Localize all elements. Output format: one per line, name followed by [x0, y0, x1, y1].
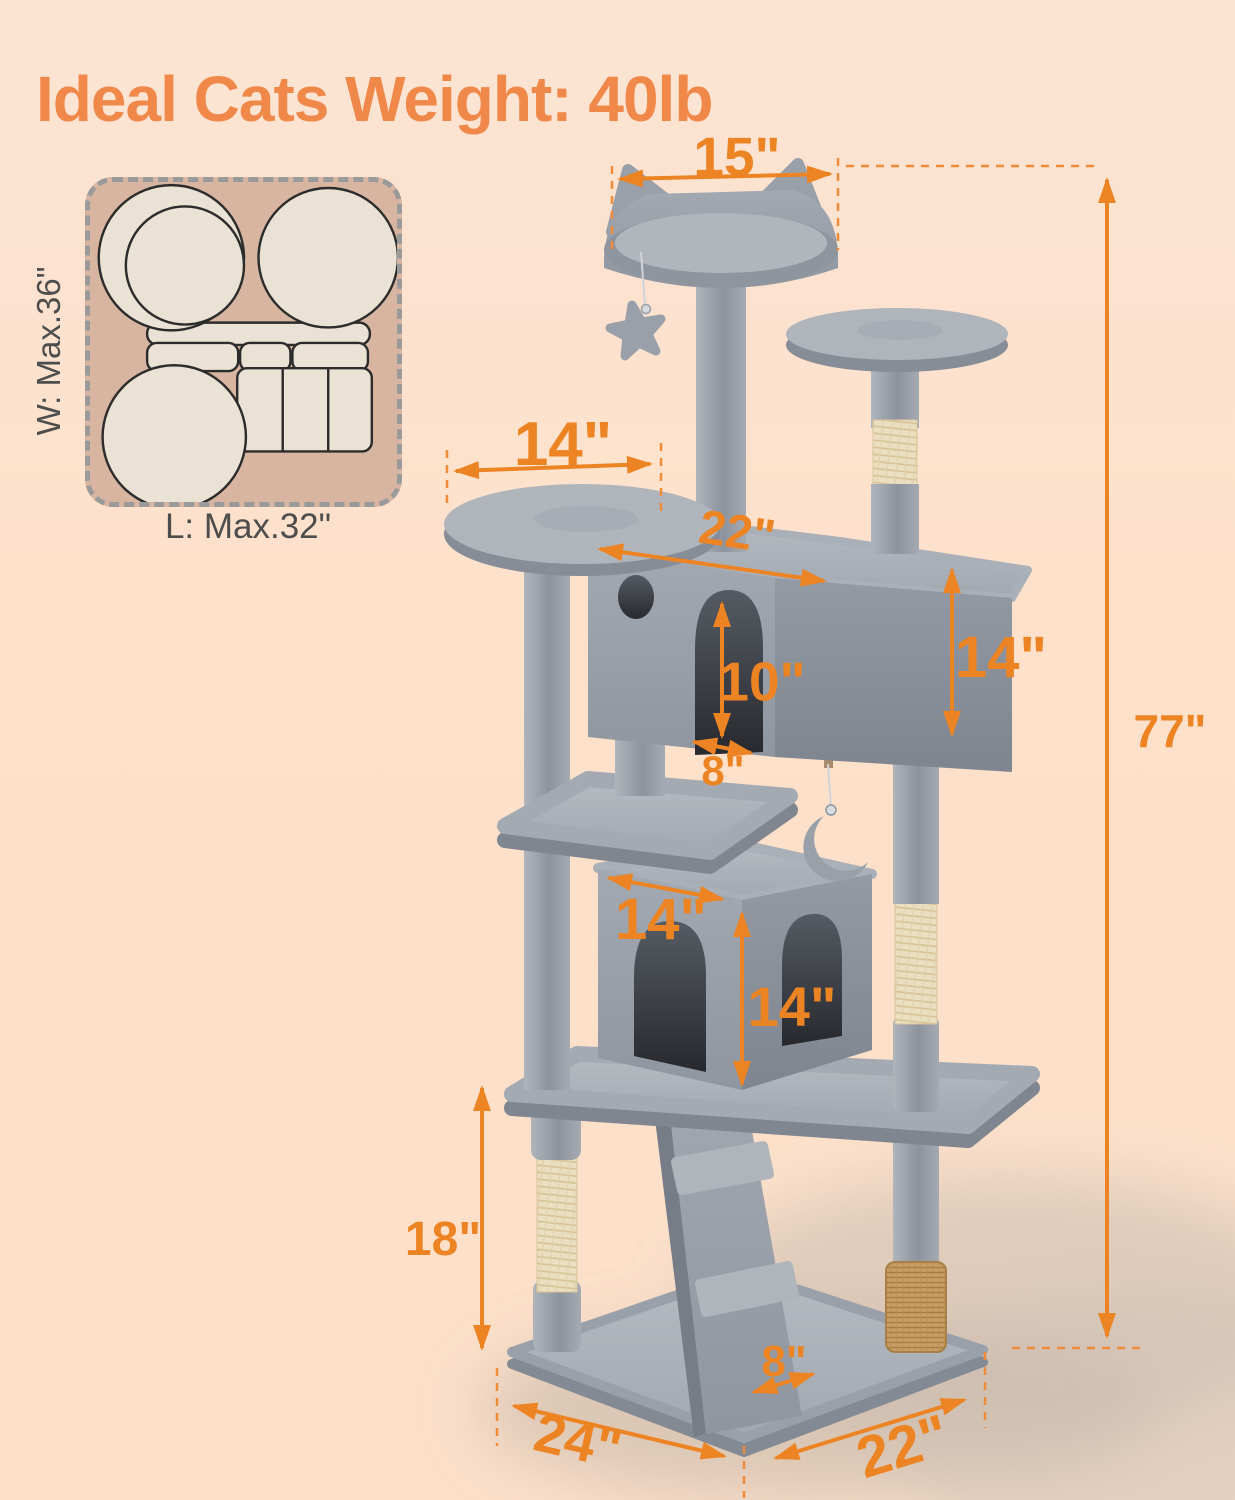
top-view-inset — [85, 177, 402, 507]
dim-label-bottom-section-height: 18" — [405, 1216, 481, 1264]
dim-label-top-perch-width: 15" — [693, 130, 780, 185]
right-upper-post — [871, 350, 919, 554]
page-title: Ideal Cats Weight: 40lb — [36, 62, 712, 136]
dim-label-total-height: 77" — [1134, 708, 1207, 754]
dim-label-ramp-width: 8" — [761, 1340, 806, 1384]
dim-label-upper-condo-height: 14" — [955, 629, 1047, 687]
top-view-diagram — [90, 182, 397, 502]
dim-label-left-platform-width: 14" — [514, 414, 612, 476]
product-dimension-infographic: Ideal Cats Weight: 40lb W: Max.36" L: Ma… — [0, 0, 1235, 1500]
upper-condo-window — [618, 575, 654, 619]
dim-label-upper-condo-door-width: 8" — [701, 750, 744, 792]
inset-length-label: L: Max.32" — [165, 507, 331, 547]
inset-width-label: W: Max.36" — [30, 267, 68, 436]
left-scratching-post — [531, 1102, 581, 1352]
dim-label-lower-condo-height: 14" — [748, 979, 837, 1035]
groom-brush — [886, 1262, 946, 1352]
dim-label-upper-condo-door-height: 10" — [718, 655, 805, 710]
rear-post-middle — [893, 742, 939, 1112]
dim-label-upper-condo-width: 22" — [696, 504, 778, 563]
right-round-platform — [786, 308, 1008, 372]
dim-label-lower-condo-width: 14" — [615, 891, 707, 949]
